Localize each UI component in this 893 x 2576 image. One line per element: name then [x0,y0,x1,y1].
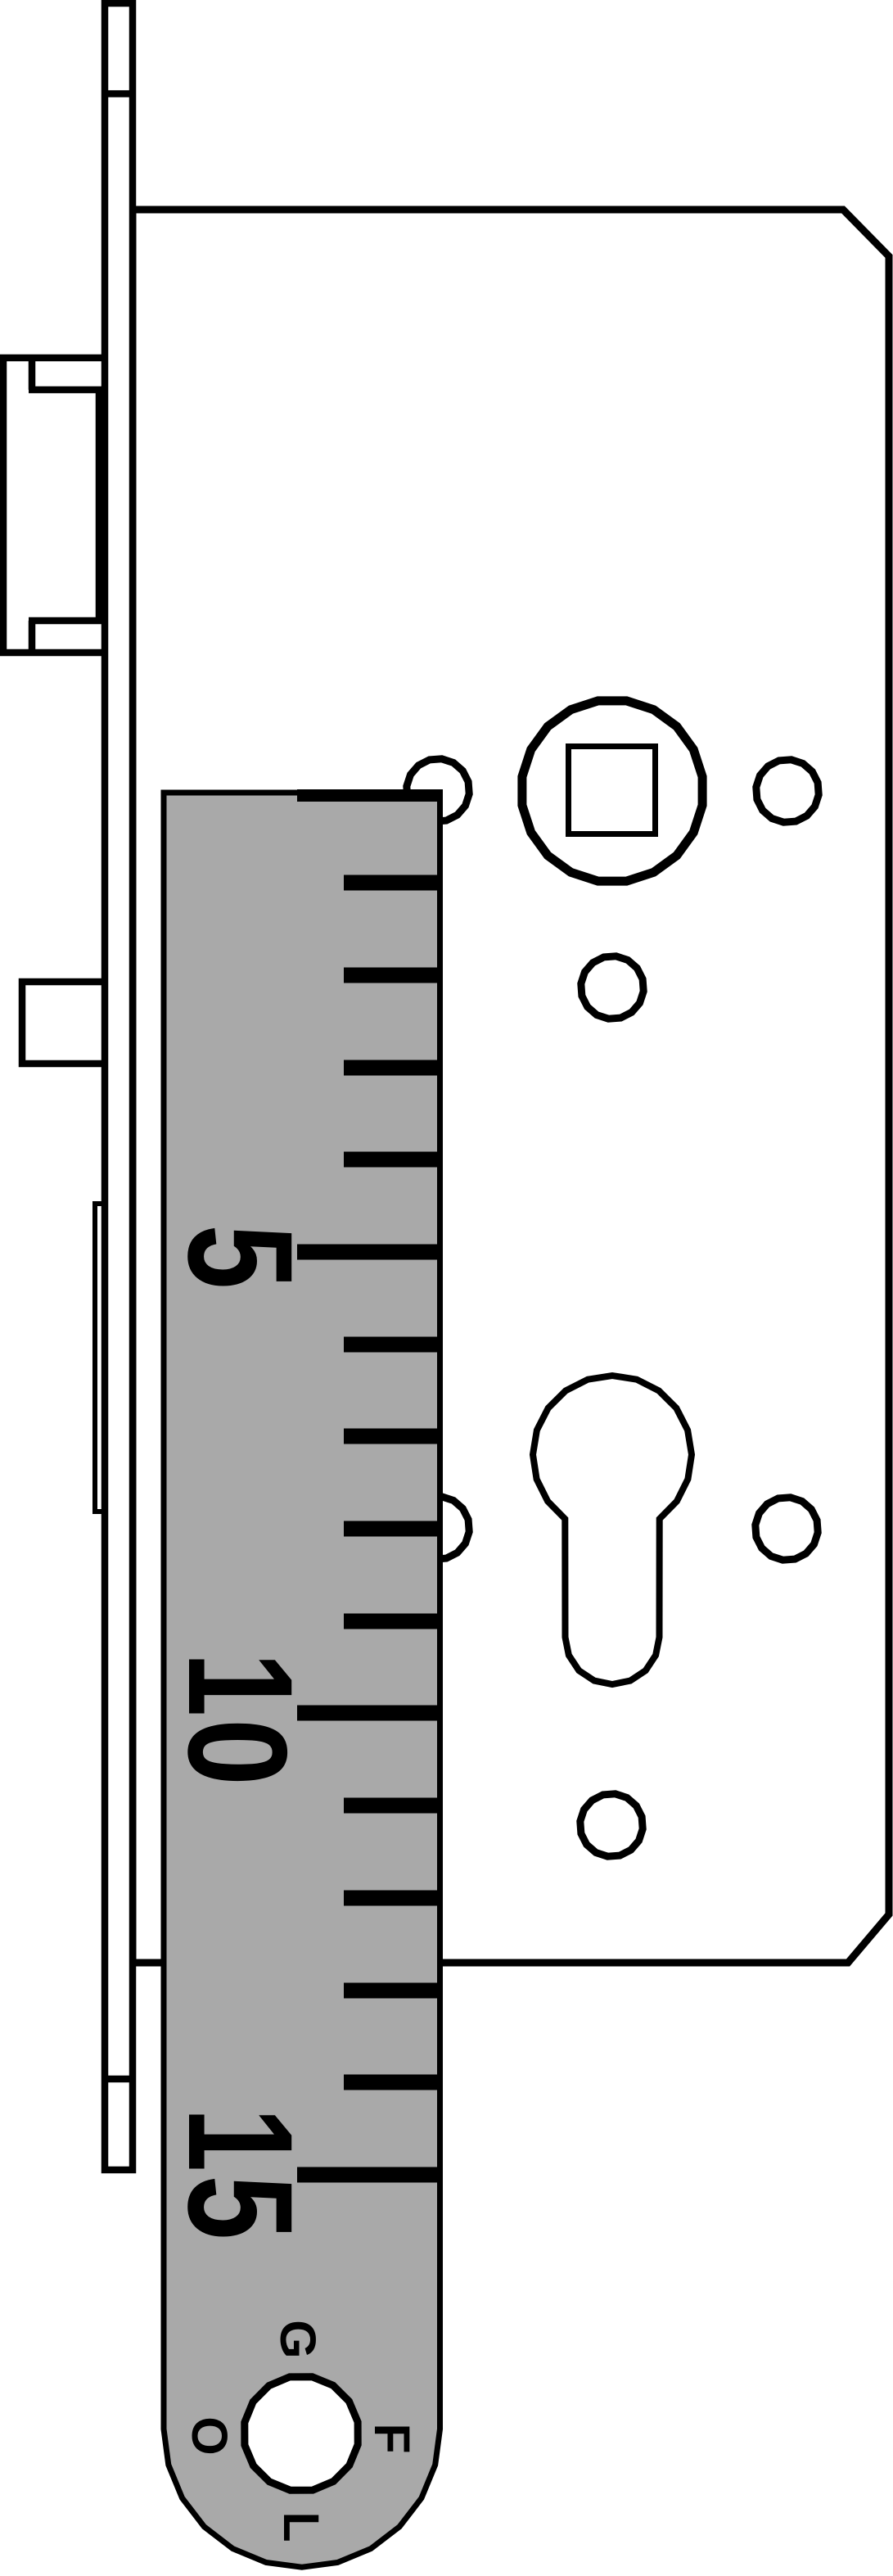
svg-text:G: G [270,2320,326,2358]
svg-text:O: O [182,2416,237,2455]
svg-text:0: 0 [160,1719,317,1786]
svg-text:L: L [273,2511,329,2542]
svg-text:F: F [364,2423,420,2453]
svg-text:5: 5 [157,1225,324,1290]
svg-text:1: 1 [157,2108,324,2172]
svg-text:1: 1 [157,1652,324,1717]
svg-text:5: 5 [157,2176,324,2240]
